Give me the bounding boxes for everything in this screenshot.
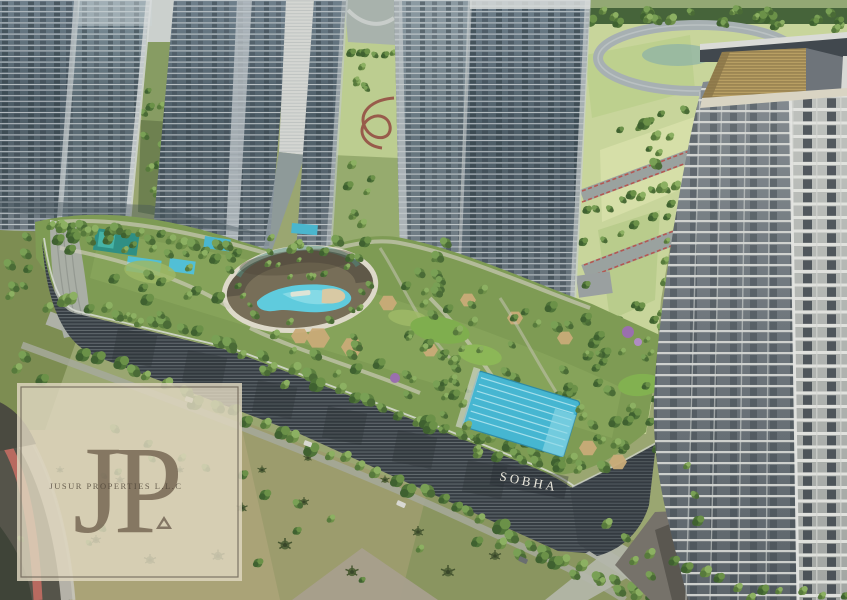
svg-text:JP: JP	[73, 422, 179, 560]
svg-text:JUSUR PROPERTIES L.L.C: JUSUR PROPERTIES L.L.C	[49, 481, 182, 491]
